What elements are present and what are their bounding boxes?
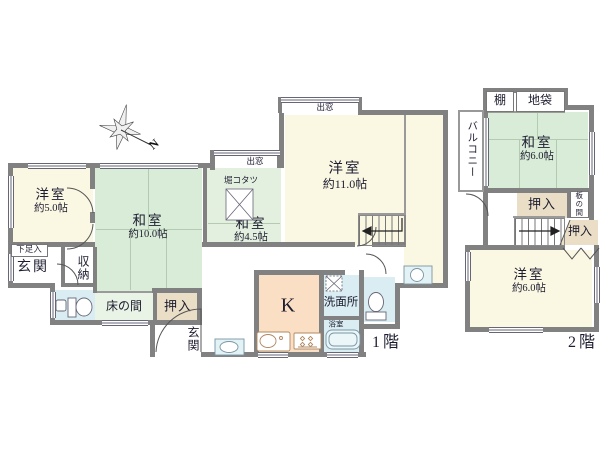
window [8,254,14,281]
window [28,163,86,169]
label-tana: 棚 [494,94,506,108]
window [8,176,14,228]
window [214,150,280,156]
window [258,352,288,358]
wall [359,270,364,357]
room-label-washitsu45: 和室 約4.5帖 [234,216,268,244]
window [489,327,543,333]
window [102,320,148,326]
wall [443,110,448,288]
window [50,292,56,318]
room-label-kitchen: K [281,295,295,318]
wall [202,242,355,247]
floor1-label: 1階 [372,334,402,352]
wall [61,247,65,285]
wall [319,272,324,355]
label-horikotatsu: 堀コタツ [224,176,258,186]
staircase-2f [514,218,565,246]
floor2-label: 2階 [568,334,598,352]
label-demado-washitsu: 出窓 [246,157,263,167]
wall [483,186,488,250]
wall [152,288,202,293]
wall [395,283,400,329]
wall [395,283,448,288]
room-label-senmenjo: 洗面所 [324,296,359,309]
compass-rose [95,100,151,154]
door-arc-toilet-center [366,254,386,274]
wall [358,110,448,115]
room-label-oshiire-1f: 押入 [164,300,192,315]
tatami-line [556,140,557,188]
room-toilet-west [55,290,95,322]
room-label-yoshitsu11: 洋室 約11.0帖 [323,161,368,191]
label-balcony: バルコニー [466,120,477,178]
wall [153,291,157,322]
label-demado-yoshitsu: 出窓 [316,103,333,113]
label-gesokuiri: 下足入 [16,245,42,255]
label-jibukuro: 地袋 [528,94,552,108]
hall-washbasin-bowl [220,342,238,353]
room-label-yokushitsu: 浴室 [329,321,344,330]
room-label-yoshitsu6: 洋室 約6.0帖 [512,267,546,295]
corridor-east [404,115,443,283]
window [100,163,198,169]
wall [254,272,259,357]
wall [465,245,517,250]
room-label-genkan-hall: 玄関 [17,260,49,276]
room-label-genkan-entry: 玄関 [187,326,199,352]
wall [150,320,155,357]
room-label-yoshitsu5: 洋室 約5.0帖 [34,187,68,215]
wall [360,324,400,329]
staircase-1f [358,215,406,246]
wall [203,166,207,245]
window [465,252,471,281]
wall [254,270,345,275]
room-label-oshiire-2f-upper: 押入 [528,198,556,213]
label-itanoma: 板の間 [575,191,583,217]
wall [90,166,95,189]
window [594,267,600,303]
wall [61,283,97,287]
wall [8,283,55,288]
wall [197,288,202,322]
window [327,352,358,358]
room-label-oshiire-2f-lower: 押入 [568,225,592,239]
wall [279,113,284,168]
north-label: N [146,136,162,153]
wall [90,212,95,223]
room-label-washitsu10: 和室 約10.0帖 [128,213,167,241]
room-label-washitsu6: 和室 約6.0帖 [520,135,554,163]
window [589,132,595,175]
floor-plan: 洋室 約5.0帖 和室 約10.0帖 和室 約4.5帖 洋室 約11.0帖 K … [0,0,600,450]
room-label-tokonoma: 床の間 [106,300,142,314]
room-toilet-center [364,277,395,322]
room-label-shuunou: 収納 [77,255,89,281]
tokonoma-edge-line [95,291,153,293]
